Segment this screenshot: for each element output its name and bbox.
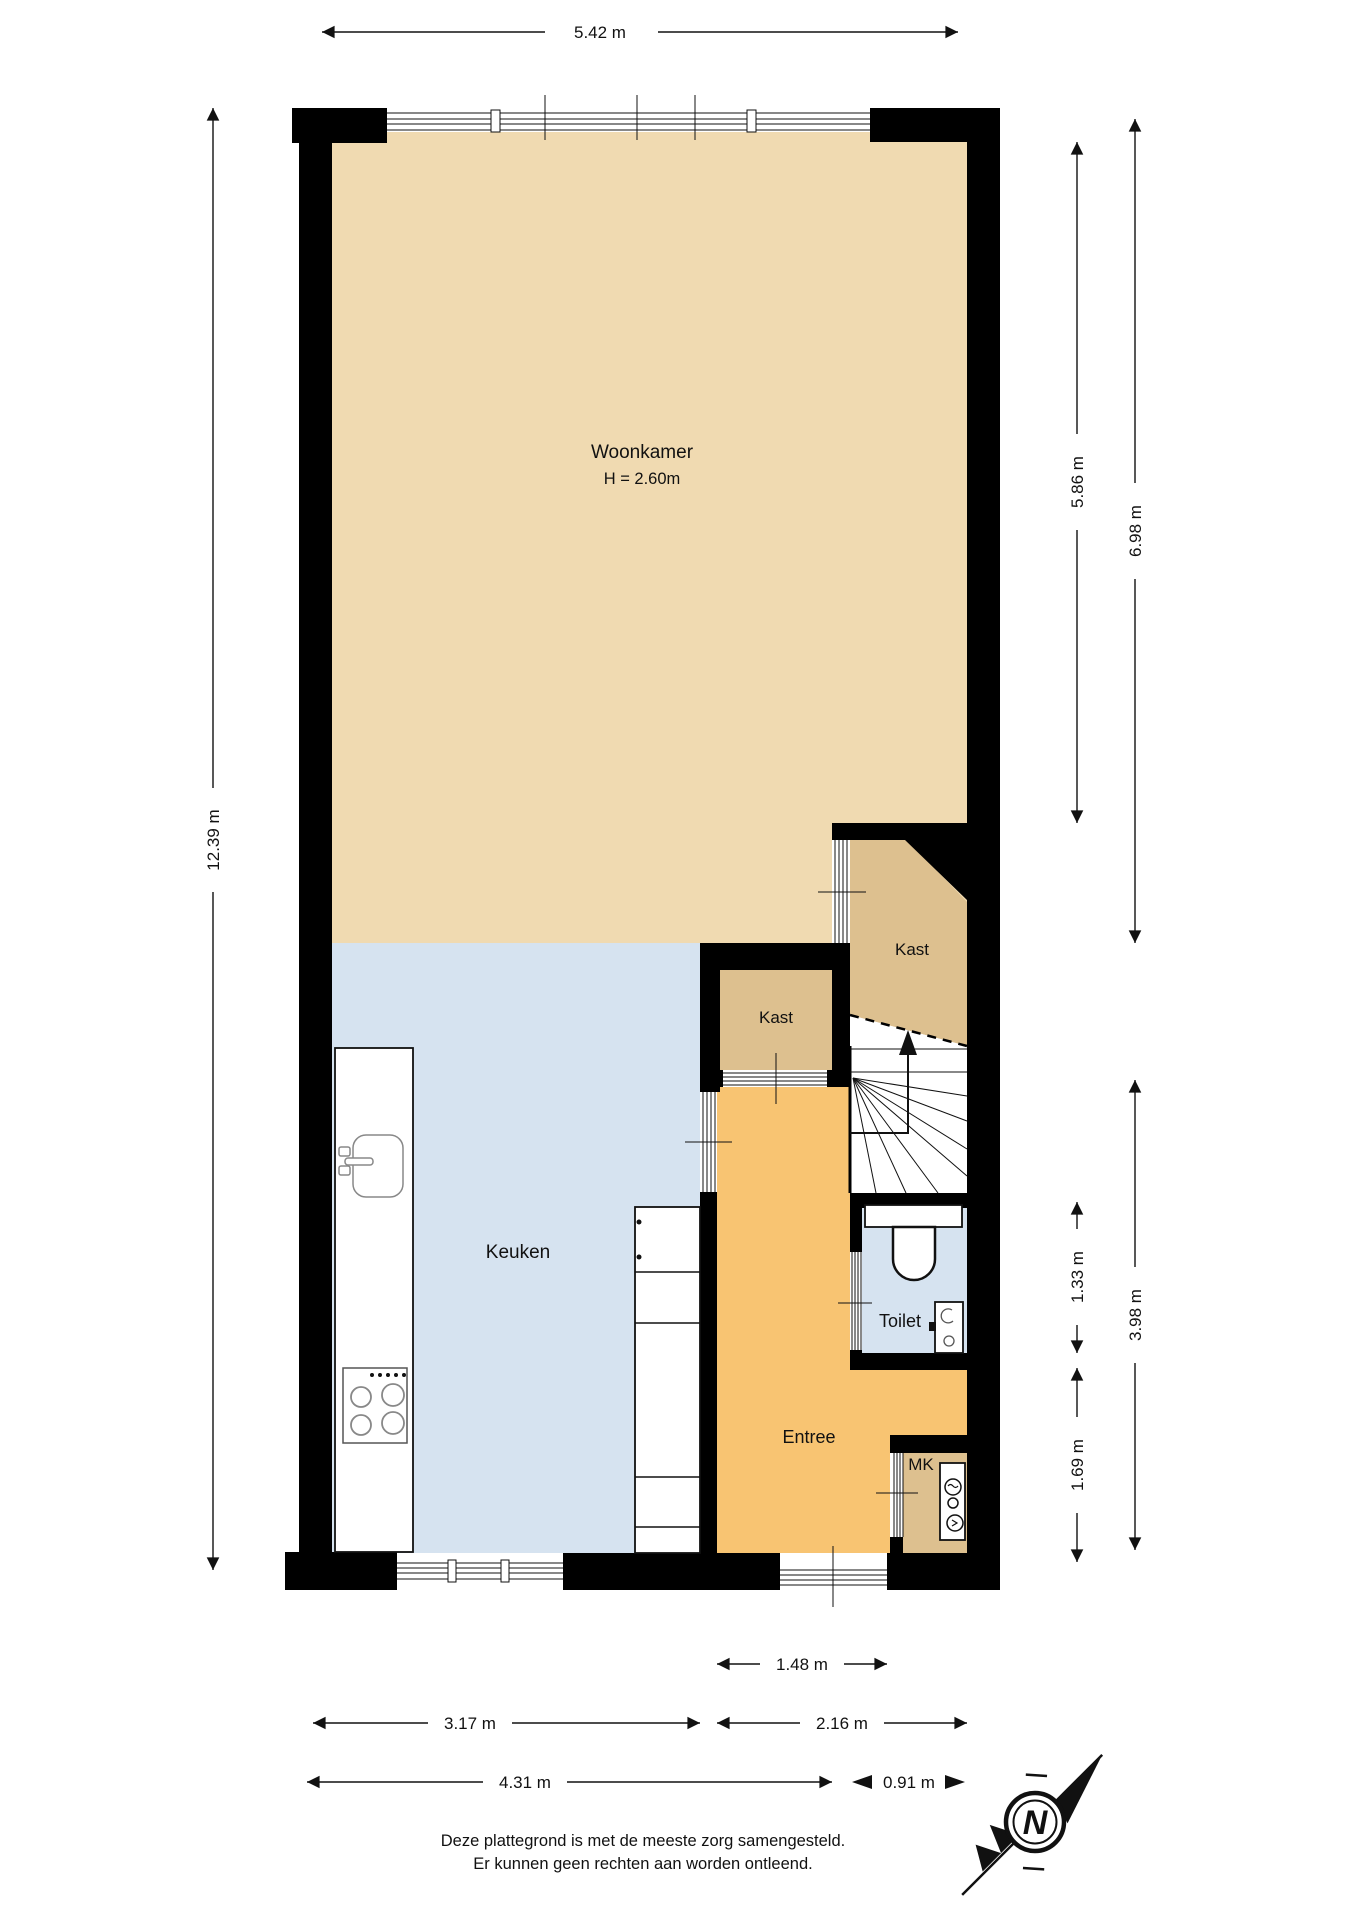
- kast-boven-label: Kast: [895, 940, 929, 959]
- svg-text:1.69 m: 1.69 m: [1068, 1439, 1087, 1491]
- svg-text:3.98 m: 3.98 m: [1126, 1289, 1145, 1341]
- woonkamer-floor: [332, 130, 967, 943]
- dim-bottom-total-left: 4.31 m: [307, 1773, 832, 1792]
- wall-mk-top: [890, 1435, 967, 1453]
- dim-bottom-total-right: 0.91 m: [852, 1773, 965, 1792]
- dim-left-height: 12.39 m: [204, 108, 223, 1570]
- svg-text:3.17 m: 3.17 m: [444, 1714, 496, 1733]
- dim-bottom-keuken: 3.17 m: [313, 1714, 700, 1733]
- wall-toilet-left-upper: [850, 1208, 862, 1252]
- svg-text:6.98 m: 6.98 m: [1126, 505, 1145, 557]
- wall-kast-onder-bottom-r: [827, 1070, 850, 1087]
- compass-tail-feather: [966, 1836, 1001, 1871]
- entree-label: Entree: [782, 1427, 835, 1447]
- wall-corner-topleft: [292, 108, 387, 143]
- appliance-hinge: [637, 1220, 642, 1225]
- footer-disclaimer: Deze plattegrond is met de meeste zorg s…: [441, 1832, 845, 1873]
- wall-mk-left-lower: [890, 1537, 903, 1553]
- svg-text:5.86 m: 5.86 m: [1068, 456, 1087, 508]
- svg-text:12.39 m: 12.39 m: [204, 809, 223, 870]
- wall-bottom-mid: [563, 1553, 780, 1590]
- entree-floor-right: [850, 1370, 967, 1435]
- entree-floor-mk-side: [850, 1435, 890, 1553]
- kitchen-counter-right: [635, 1207, 700, 1553]
- mk-label: MK: [908, 1455, 934, 1474]
- woonkamer-label: Woonkamer: [591, 442, 694, 463]
- wall-kast-onder-top: [700, 943, 850, 970]
- svg-text:2.16 m: 2.16 m: [816, 1714, 868, 1733]
- svg-text:5.42 m: 5.42 m: [574, 23, 626, 42]
- toilet-label: Toilet: [879, 1311, 921, 1331]
- wall-keuken-right-upper: [700, 943, 720, 1092]
- toilet-cistern-shelf: [865, 1205, 962, 1227]
- svg-text:1.48 m: 1.48 m: [776, 1655, 828, 1674]
- dim-right-woonkamer-inner: 5.86 m: [1068, 142, 1087, 823]
- window-keuken-bottom: [397, 1560, 563, 1582]
- wall-keuken-right-lower: [700, 1192, 717, 1553]
- wall-bottom-right: [887, 1553, 1000, 1590]
- compass-north-letter: N: [1023, 1804, 1049, 1842]
- front-door-opening: [780, 1546, 887, 1607]
- keuken-label: Keuken: [486, 1242, 550, 1263]
- woonkamer-height-note: H = 2.60m: [604, 470, 681, 488]
- toilet-bowl: [893, 1227, 935, 1280]
- floor-plan-canvas: Woonkamer H = 2.60m Keuken Kast Kast Toi…: [0, 0, 1358, 1920]
- compass: N: [934, 1727, 1131, 1920]
- kast-onder-label: Kast: [759, 1008, 793, 1027]
- dim-right-hall-total: 3.98 m: [1126, 1080, 1145, 1550]
- mk-fixtures: [940, 1463, 965, 1540]
- disclaimer-line-2: Er kunnen geen rechten aan worden ontlee…: [473, 1855, 812, 1873]
- wall-corner-topright: [870, 108, 1000, 142]
- dim-right-woonkamer-outer: 6.98 m: [1126, 119, 1145, 943]
- mk-meter-3: [947, 1515, 963, 1531]
- dim-right-entree-lower: 1.69 m: [1068, 1368, 1087, 1562]
- dim-top-width: 5.42 m: [322, 23, 958, 42]
- appliance-hinge: [637, 1255, 642, 1260]
- wall-kast-onder-bottom-l: [700, 1070, 723, 1087]
- wall-kast-boven-top: [832, 823, 967, 840]
- wall-bottom-left: [285, 1552, 397, 1590]
- entree-floor-main: [717, 1087, 850, 1553]
- toilet-basin: [935, 1302, 963, 1353]
- dim-bottom-entree: 1.48 m: [717, 1655, 887, 1674]
- svg-text:0.91 m: 0.91 m: [883, 1773, 935, 1792]
- kitchen-sink: [353, 1135, 403, 1197]
- disclaimer-line-1: Deze plattegrond is met de meeste zorg s…: [441, 1832, 845, 1850]
- wall-toilet-bottom: [850, 1353, 967, 1370]
- wall-left: [299, 108, 332, 1590]
- svg-text:1.33 m: 1.33 m: [1068, 1251, 1087, 1303]
- dim-right-toilet: 1.33 m: [1068, 1202, 1087, 1353]
- toilet-basin-mount: [929, 1322, 936, 1331]
- kitchen-counter-left: [335, 1048, 413, 1552]
- wall-right: [967, 108, 1000, 1590]
- mk-meter-1: [945, 1479, 961, 1495]
- svg-text:4.31 m: 4.31 m: [499, 1773, 551, 1792]
- mk-meter-2: [948, 1498, 958, 1508]
- dim-bottom-hall: 2.16 m: [717, 1714, 967, 1733]
